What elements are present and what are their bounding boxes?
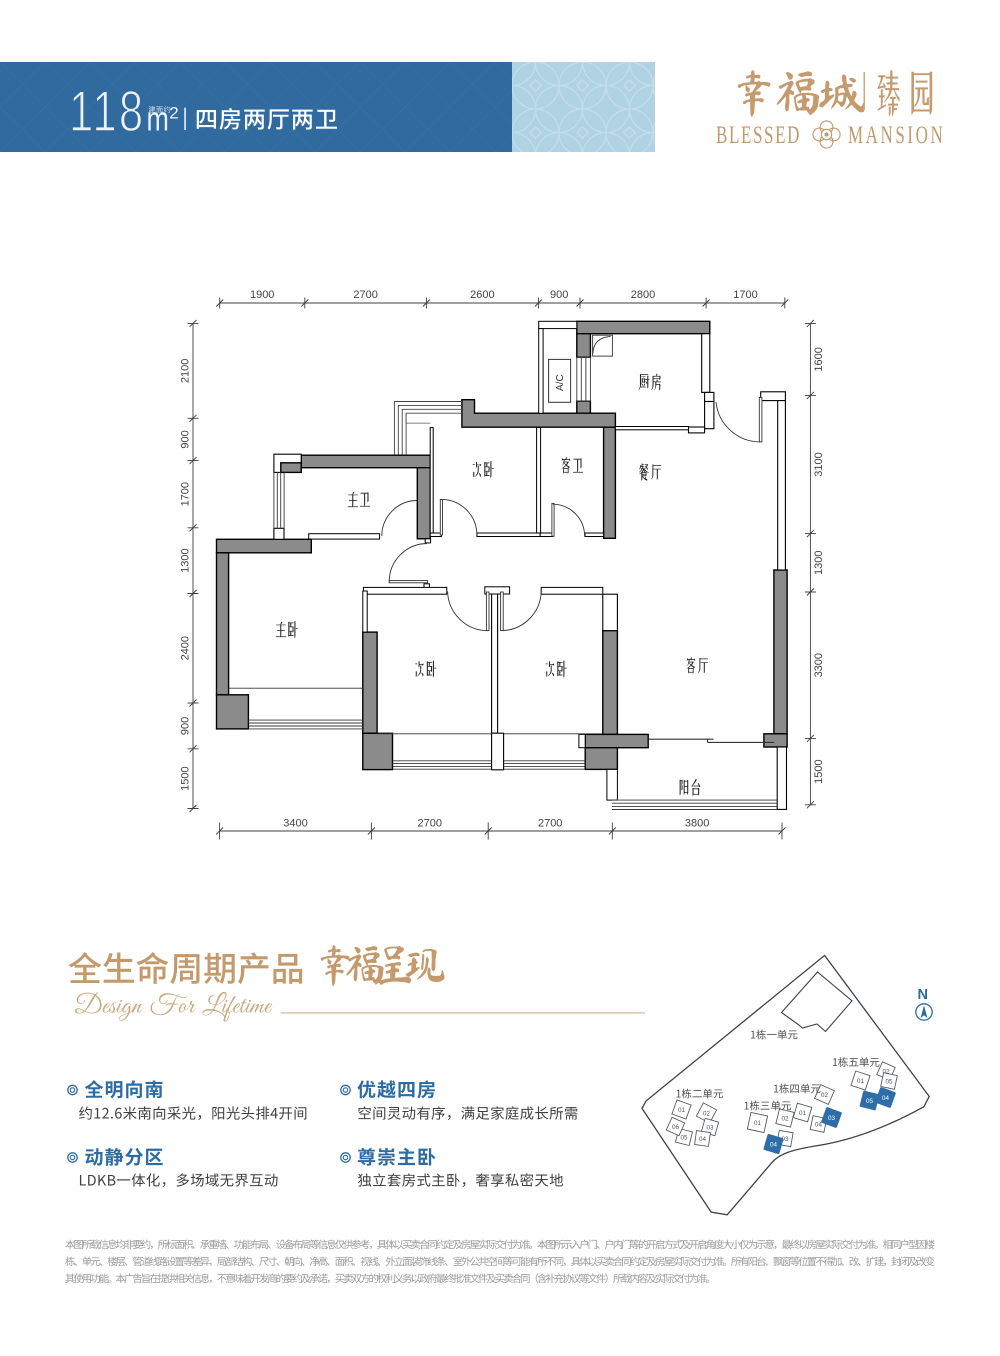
svg-text:04: 04 [815,1122,823,1129]
svg-text:3300: 3300 [813,653,825,677]
svg-text:1900: 1900 [250,289,274,301]
svg-text:01: 01 [754,1120,762,1127]
svg-text:04: 04 [770,1142,778,1149]
svg-text:05: 05 [866,1098,874,1105]
svg-text:1700: 1700 [733,289,757,301]
svg-text:2: 2 [169,104,178,123]
svg-text:900: 900 [180,430,192,448]
svg-text:2700: 2700 [538,818,562,830]
svg-text:3800: 3800 [685,818,709,830]
svg-text:01: 01 [678,1107,686,1114]
svg-text:1300: 1300 [813,551,825,575]
svg-text:MANSION: MANSION [848,121,945,149]
svg-text:2700: 2700 [353,289,377,301]
svg-text:02: 02 [821,1092,829,1099]
svg-text:1500: 1500 [180,766,192,790]
svg-text:03: 03 [828,1115,836,1122]
svg-text:900: 900 [180,717,192,735]
svg-text:BLESSED: BLESSED [716,121,801,149]
svg-text:06: 06 [672,1124,680,1131]
svg-text:N: N [918,987,928,1003]
svg-text:02: 02 [781,1116,789,1123]
svg-text:04: 04 [699,1136,707,1143]
svg-text:900: 900 [550,289,568,301]
svg-text:1500: 1500 [813,759,825,783]
svg-text:03: 03 [706,1125,714,1132]
svg-text:2800: 2800 [631,289,655,301]
svg-text:2100: 2100 [180,359,192,383]
svg-text:01: 01 [799,1110,807,1117]
svg-text:2400: 2400 [180,636,192,660]
svg-text:A/C: A/C [555,374,566,391]
svg-text:05: 05 [885,1079,893,1086]
svg-text:1600: 1600 [813,347,825,371]
svg-text:m: m [147,99,169,138]
svg-text:118: 118 [69,79,145,143]
svg-text:2600: 2600 [470,289,494,301]
svg-text:05: 05 [680,1135,688,1142]
svg-text:3100: 3100 [813,452,825,476]
svg-text:1700: 1700 [180,482,192,506]
svg-text:3400: 3400 [283,818,307,830]
svg-text:02: 02 [703,1111,711,1118]
svg-text:2700: 2700 [418,818,442,830]
svg-text:1300: 1300 [180,548,192,572]
svg-text:01: 01 [857,1078,865,1085]
svg-text:04: 04 [882,1095,890,1102]
